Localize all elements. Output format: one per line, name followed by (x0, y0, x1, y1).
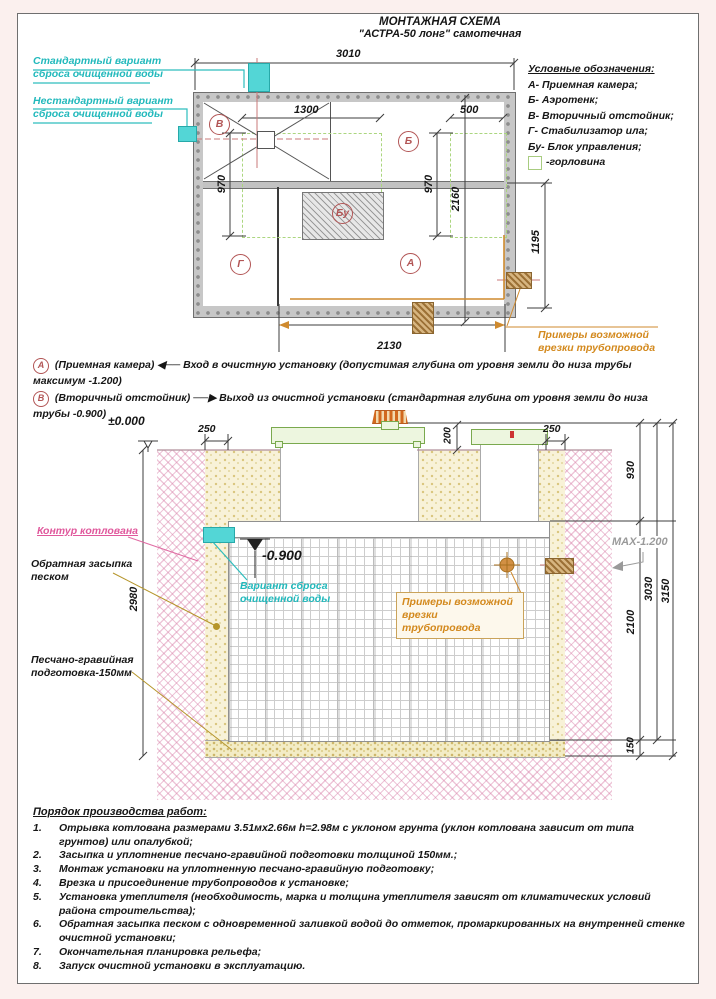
dim-pit-depth: 3150 (660, 574, 672, 608)
sand-gravel-base (205, 740, 565, 758)
item-number: 4. (33, 877, 59, 891)
neck-shaft-left (280, 443, 419, 523)
cover-plate-left (271, 427, 425, 444)
neck-symbol (528, 156, 542, 170)
drawing-title: МОНТАЖНАЯ СХЕМА (320, 16, 560, 28)
legend-item: А- Приемная камера; (528, 78, 696, 94)
level-outlet: -0.900 (262, 547, 302, 563)
item-number: 6. (33, 918, 59, 946)
dim-unit-width: 2160 (450, 182, 462, 216)
procedure-item: 1.Отрывка котлована размерами 3.51мх2.66… (33, 822, 685, 850)
procedure-item: 4.Врезка и присоединение трубопроводов к… (33, 877, 685, 891)
item-number: 5. (33, 891, 59, 919)
legend-neck-label: -горловина (546, 155, 605, 171)
note-b-badge: В (33, 391, 49, 407)
dim-neck1-width: 1300 (294, 104, 318, 116)
legend-title: Условные обозначения: (528, 62, 696, 78)
inlet-pipe-right (506, 272, 532, 289)
item-text: Монтаж установки на уплотненную песчано-… (59, 863, 685, 877)
item-text: Запуск очистной установки в эксплуатацию… (59, 960, 685, 974)
item-text: Обратная засыпка песком с одновременной … (59, 918, 685, 946)
cover-plate-foot (275, 441, 283, 448)
legend-item: Б- Аэротенк; (528, 93, 696, 109)
item-text: Установка утеплителя (необходимость, мар… (59, 891, 685, 919)
item-number: 2. (33, 849, 59, 863)
item-number: 7. (33, 946, 59, 960)
outlet-standard-label: Стандартный вариант сброса очищенной вод… (33, 55, 163, 81)
dim-cover-height: 200 (443, 419, 454, 453)
level-max: МАХ-1.200 (610, 536, 670, 548)
procedures-title: Порядок производства работ: (33, 806, 685, 820)
procedure-item: 2.Засыпка и уплотнение песчано-гравийной… (33, 849, 685, 863)
legend-item: В- Вторичный отстойник; (528, 109, 696, 125)
procedure-item: 6.Обратная засыпка песком с одновременно… (33, 918, 685, 946)
backfill-leader-dot (213, 623, 220, 630)
neck-shaft-right (480, 443, 539, 523)
settler-center-square (257, 131, 275, 149)
inlet-pipe-section (545, 558, 574, 574)
base-label: Песчано-гравийная подготовка-150мм (31, 654, 134, 680)
outlet-variant-label: Вариант сброса очищенной воды (240, 580, 330, 606)
note-inlet: А (Приемная камера) ◀── Вход в очистную … (33, 358, 685, 389)
drawing-sheet: МОНТАЖНАЯ СХЕМА "АСТРА-50 лонг" самотечн… (0, 0, 716, 999)
plate-marker (510, 431, 514, 438)
legend-item: Г- Стабилизатор ила; (528, 124, 696, 140)
chamber-label-v: В (209, 114, 230, 135)
item-text: Окончательная планировка рельефа; (59, 946, 685, 960)
procedure-item: 3.Монтаж установки на уплотненную песчан… (33, 863, 685, 877)
pit-contour-label: Контур котлована (37, 525, 138, 538)
dim-neck2-width: 500 (460, 104, 478, 116)
plan-pipe-note: Примеры возможной врезки трубопровода (538, 329, 655, 355)
chamber-label-bu: Бу (332, 203, 353, 224)
dim-inlet-offset: 2130 (377, 340, 401, 352)
dim-unit-total: 3030 (643, 572, 655, 606)
level-zero: ±0.000 (108, 414, 145, 428)
note-a-badge: А (33, 358, 49, 374)
chamber-label-b: Б (398, 131, 419, 152)
dim-excavation-depth: 2980 (128, 582, 140, 616)
section-pipe-note: Примеры возможной врезки трубопровода (396, 592, 524, 639)
note-b-name: (Вторичный отстойник) (55, 392, 190, 404)
outlet-pipe-nonstandard (178, 126, 197, 142)
dim-total-width: 3010 (336, 48, 360, 60)
chamber-label-a: А (400, 253, 421, 274)
item-text: Врезка и присоединение трубопроводов к у… (59, 877, 685, 891)
backfill-label: Обратная засыпка песком (31, 558, 132, 584)
item-number: 3. (33, 863, 59, 877)
outlet-pipe-standard (248, 63, 270, 92)
tank-body (228, 537, 550, 742)
outlet-pipe-section (203, 527, 235, 543)
chamber-label-g: Г (230, 254, 251, 275)
note-a-name: (Приемная камера) (55, 359, 154, 371)
note-a-arrow-icon: ◀── (157, 359, 180, 371)
drawing-subtitle: "АСТРА-50 лонг" самотечная (320, 28, 560, 40)
item-number: 1. (33, 822, 59, 850)
item-text: Отрывка котлована размерами 3.51мх2.66м … (59, 822, 685, 850)
dim-base-thickness: 150 (626, 729, 637, 763)
procedure-item: 7.Окончательная планировка рельефа; (33, 946, 685, 960)
item-number: 8. (33, 960, 59, 974)
procedure-item: 5.Установка утеплителя (необходимость, м… (33, 891, 685, 919)
dim-neck1-depth: 970 (216, 167, 228, 201)
inlet-pipe-bottom (412, 302, 434, 334)
dim-neck-buried: 930 (625, 453, 637, 487)
note-b-arrow-icon: ──▶ (193, 392, 216, 404)
dim-neck2-depth: 970 (423, 167, 435, 201)
procedure-item: 8.Запуск очистной установки в эксплуатац… (33, 960, 685, 974)
dim-outlet-offset: 1195 (530, 225, 542, 259)
legend-item: Бу- Блок управления; (528, 140, 696, 156)
dim-body-height: 2100 (625, 605, 637, 639)
item-text: Засыпка и уплотнение песчано-гравийной п… (59, 849, 685, 863)
vent-stem (381, 421, 399, 430)
outlet-nonstandard-label: Нестандартный вариант сброса очищенной в… (33, 95, 173, 121)
cover-plate-foot (413, 441, 421, 448)
dim-gap-left: 250 (198, 423, 216, 435)
dim-gap-right: 250 (543, 423, 561, 435)
